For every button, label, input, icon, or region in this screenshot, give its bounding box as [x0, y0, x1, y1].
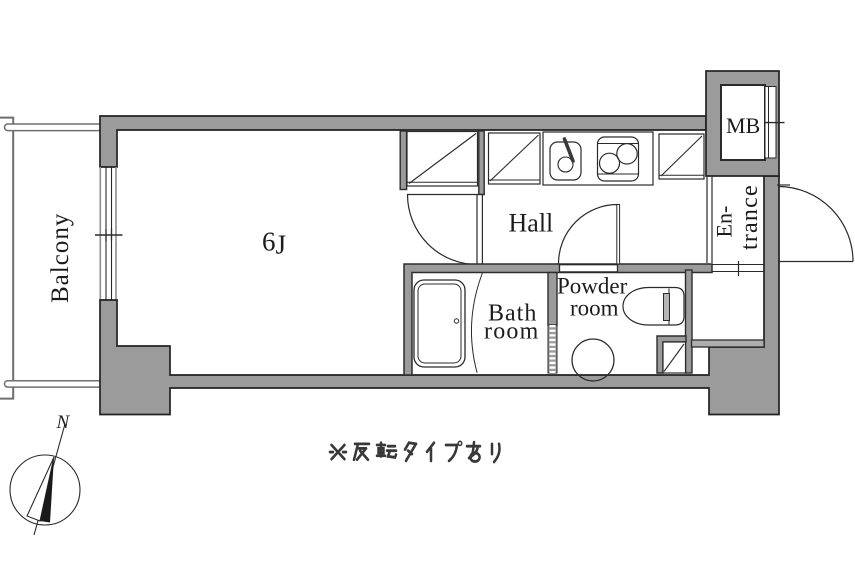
svg-text:room: room: [570, 296, 619, 321]
svg-text:room: room: [484, 319, 539, 345]
svg-text:trance: trance: [737, 184, 763, 250]
svg-text:6J: 6J: [262, 227, 286, 260]
svg-text:N: N: [56, 412, 71, 433]
svg-text:Balcony: Balcony: [47, 213, 74, 303]
svg-text:Hall: Hall: [509, 209, 554, 238]
svg-text:MB: MB: [726, 113, 760, 138]
svg-text:En-: En-: [712, 206, 737, 238]
